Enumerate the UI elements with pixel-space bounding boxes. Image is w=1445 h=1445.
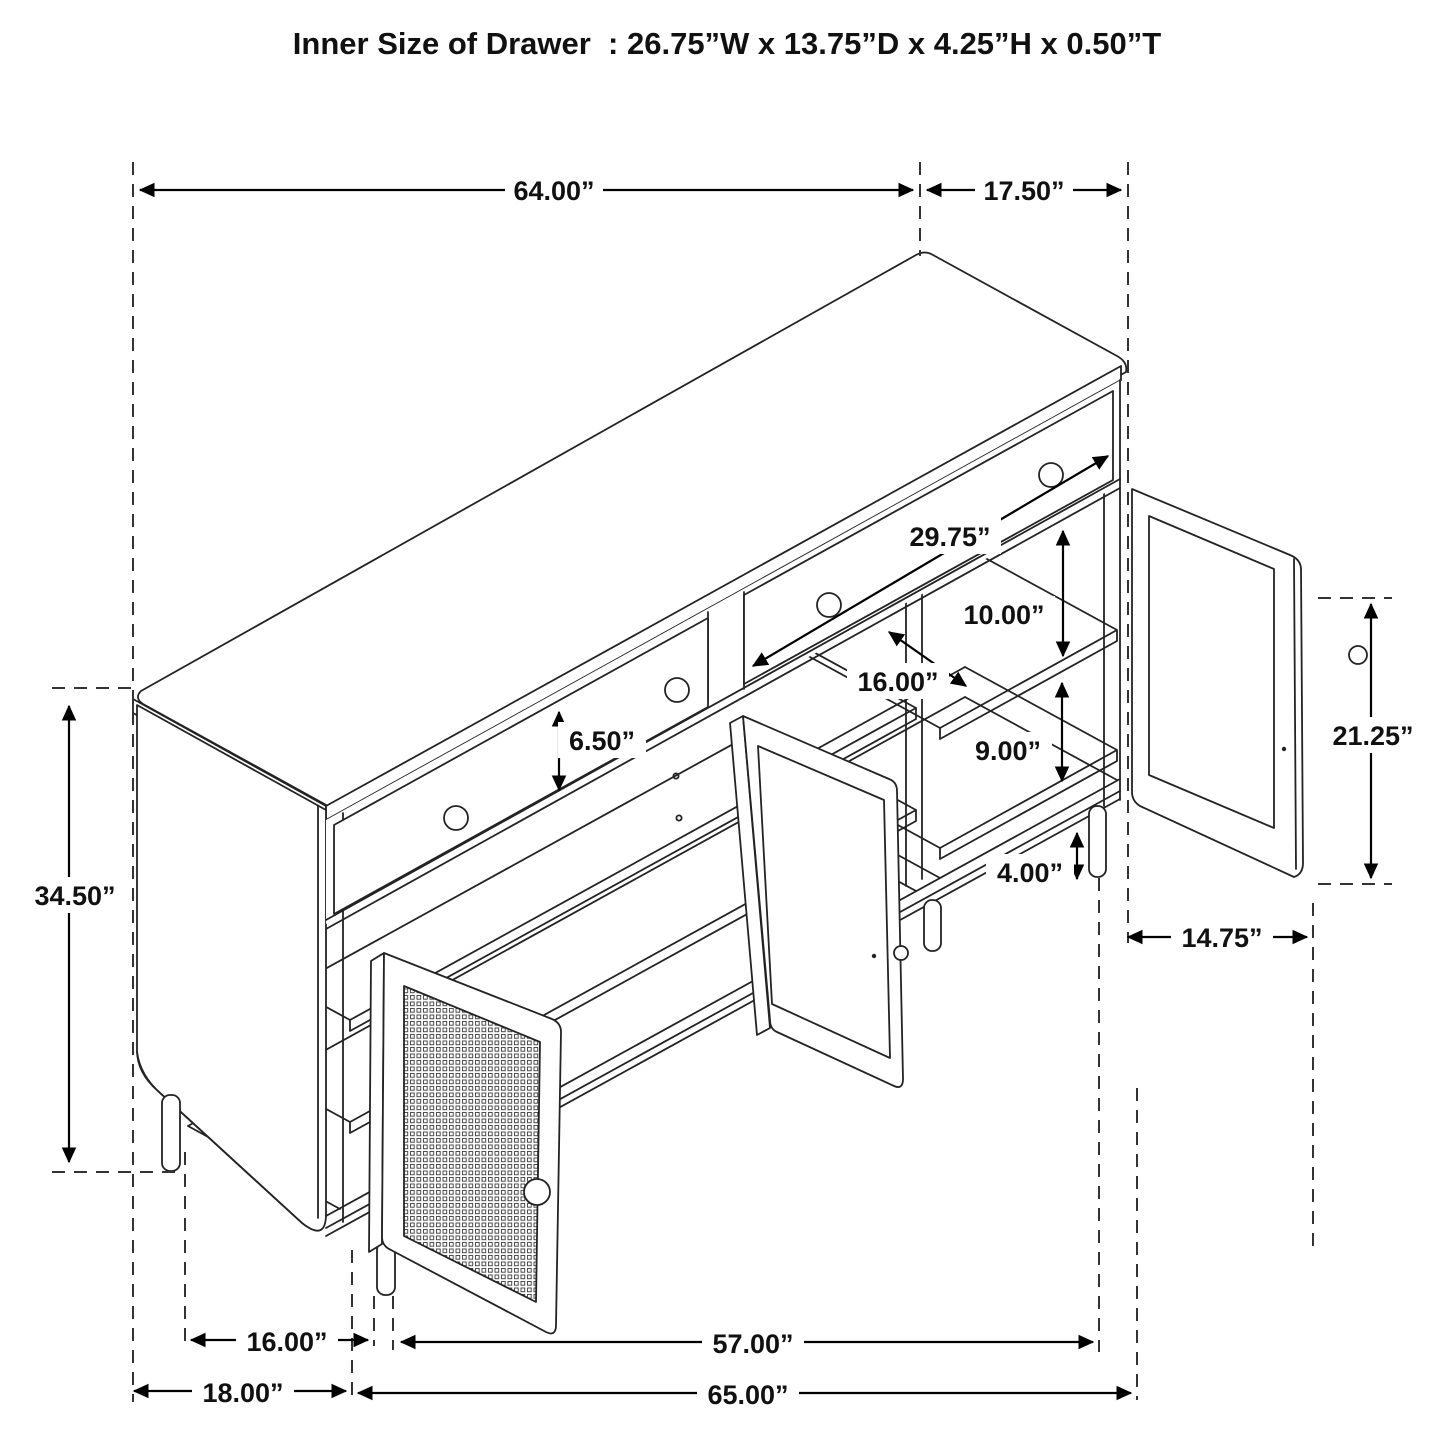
dimension-label-drawer-width: 29.75” [909,522,990,552]
dimension-label-base-leg-depth: 16.00” [246,1327,327,1357]
dimension-label-leg-height: 4.00” [997,858,1063,888]
sideboard-dimension-diagram: Inner Size of Drawer : 26.75”W x 13.75”D… [0,0,1445,1445]
dimension-label-base-depth: 18.00” [202,1378,283,1408]
drawer-knob-icon [665,678,689,702]
door-cane-open [369,953,561,1333]
dimension-label-shelf-depth: 16.00” [857,667,938,697]
dimension-label-top-depth: 17.50” [983,176,1064,206]
dimension-label-door-height: 21.25” [1332,721,1413,751]
center-post [906,587,922,886]
door-knob-icon [1349,646,1367,664]
door-middle-open [730,716,908,1087]
door-dot [872,954,876,958]
drawer-knob-icon [1039,463,1063,487]
ref-front-left-leg [374,1296,393,1350]
dimension-label-upper-clearance: 10.00” [963,600,1044,630]
leg-front-center [924,900,941,951]
leg-rear-left [162,1095,180,1171]
page-title: Inner Size of Drawer : 26.75”W x 13.75”D… [293,26,1161,61]
leg-front-right [1089,806,1106,877]
door-right-open [1132,489,1367,877]
sideboard-drawing [133,253,1367,1334]
shelf-pin-hole [676,815,681,820]
door-knob-icon [894,946,908,960]
dimension-label-overall-width: 65.00” [707,1380,788,1410]
dimension-label-overall-height: 34.50” [34,881,115,911]
drawer-knob-icon [817,593,841,617]
dimension-diagram-page: Inner Size of Drawer : 26.75”W x 13.75”D… [0,0,1445,1445]
drawer-knob-icon [444,806,468,830]
dimension-label-drawer-face: 6.50” [569,726,635,756]
dimension-label-door-width: 14.75” [1181,923,1262,953]
dimension-label-top-width: 64.00” [513,176,594,206]
door-dot [1282,747,1286,751]
dimension-label-lower-clearance: 9.00” [975,736,1041,766]
dimension-label-front-leg-span: 57.00” [712,1329,793,1359]
door-knob-icon [524,1179,550,1205]
